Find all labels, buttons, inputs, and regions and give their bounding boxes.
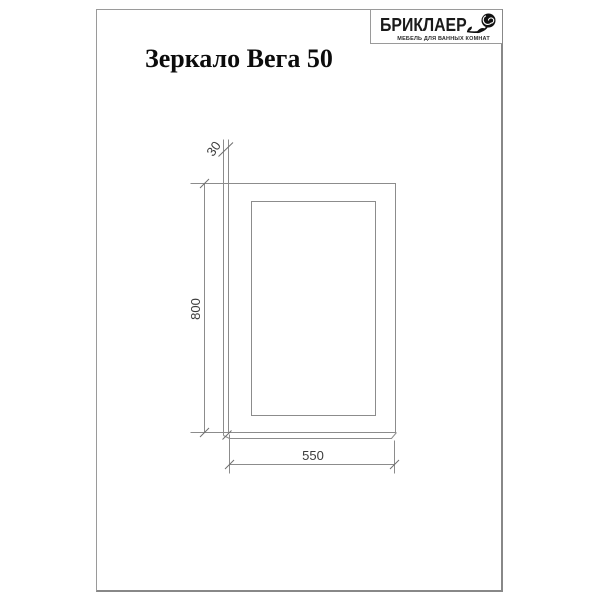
height-dim-label: 800 (188, 298, 203, 320)
width-dim-label: 550 (302, 448, 324, 463)
depth-dim-label: 30 (203, 138, 224, 158)
mirror-outline (229, 184, 396, 433)
product-spec-sheet: Зеркало Вега 50 БРИКЛАЕР МЕБЕЛЬ ДЛЯ ВАНН… (0, 0, 600, 600)
mirror-dimension-drawing: 30 800 550 (0, 0, 600, 600)
mirror-inner-edge (252, 202, 376, 416)
bottom-depth-strip (224, 433, 397, 439)
